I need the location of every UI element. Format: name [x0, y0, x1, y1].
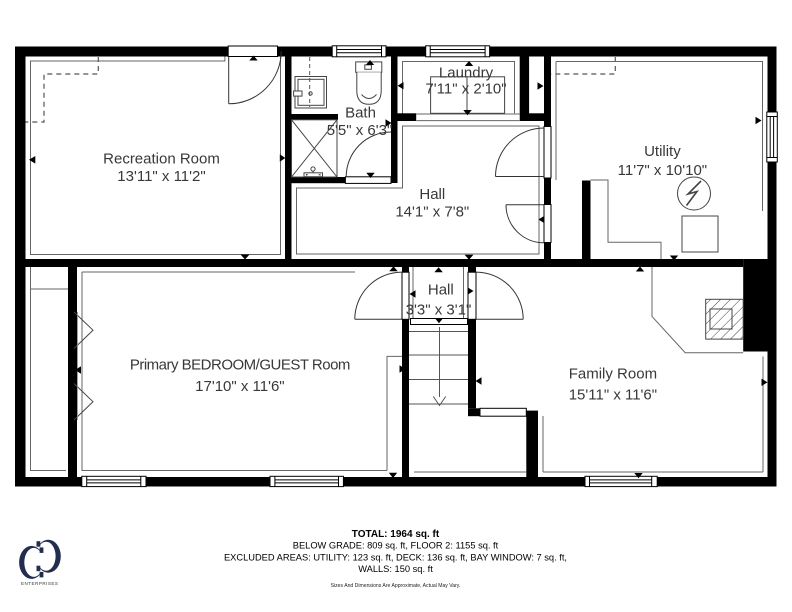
svg-text:WALLS: 150 sq. ft: WALLS: 150 sq. ft [358, 564, 433, 574]
svg-text:Hall: Hall [428, 282, 454, 299]
svg-text:TOTAL: 1964 sq. ft: TOTAL: 1964 sq. ft [352, 529, 440, 540]
svg-text:15'11" x 11'6": 15'11" x 11'6" [569, 387, 657, 404]
svg-text:Utility: Utility [644, 143, 681, 160]
svg-text:Sizes And Dimensions Are Appro: Sizes And Dimensions Are Approximate, Ac… [331, 583, 461, 589]
svg-text:Laundry: Laundry [439, 64, 494, 81]
svg-text:Recreation Room: Recreation Room [103, 151, 220, 168]
svg-text:3'3" x 3'1": 3'3" x 3'1" [406, 302, 472, 319]
svg-text:17'10" x 11'6": 17'10" x 11'6" [195, 378, 285, 395]
svg-text:ENTERPRISES: ENTERPRISES [21, 581, 58, 586]
svg-text:Primary BEDROOM/GUEST Room: Primary BEDROOM/GUEST Room [130, 356, 350, 373]
svg-text:Bath: Bath [345, 105, 376, 122]
svg-text:13'11" x 11'2": 13'11" x 11'2" [117, 168, 205, 185]
svg-text:EXCLUDED AREAS: UTILITY: 123 s: EXCLUDED AREAS: UTILITY: 123 sq. ft, DEC… [224, 552, 567, 562]
svg-text:11'7" x 10'10": 11'7" x 10'10" [618, 162, 708, 179]
svg-text:Hall: Hall [419, 186, 445, 203]
svg-text:Family Room: Family Room [569, 366, 657, 383]
svg-text:7'11" x 2'10": 7'11" x 2'10" [425, 80, 506, 97]
svg-text:5'5" x 6'3": 5'5" x 6'3" [327, 122, 393, 139]
svg-text:BELOW GRADE: 809 sq. ft, FLOOR: BELOW GRADE: 809 sq. ft, FLOOR 2: 1155 s… [293, 541, 499, 551]
svg-text:14'1" x 7'8": 14'1" x 7'8" [395, 203, 469, 220]
